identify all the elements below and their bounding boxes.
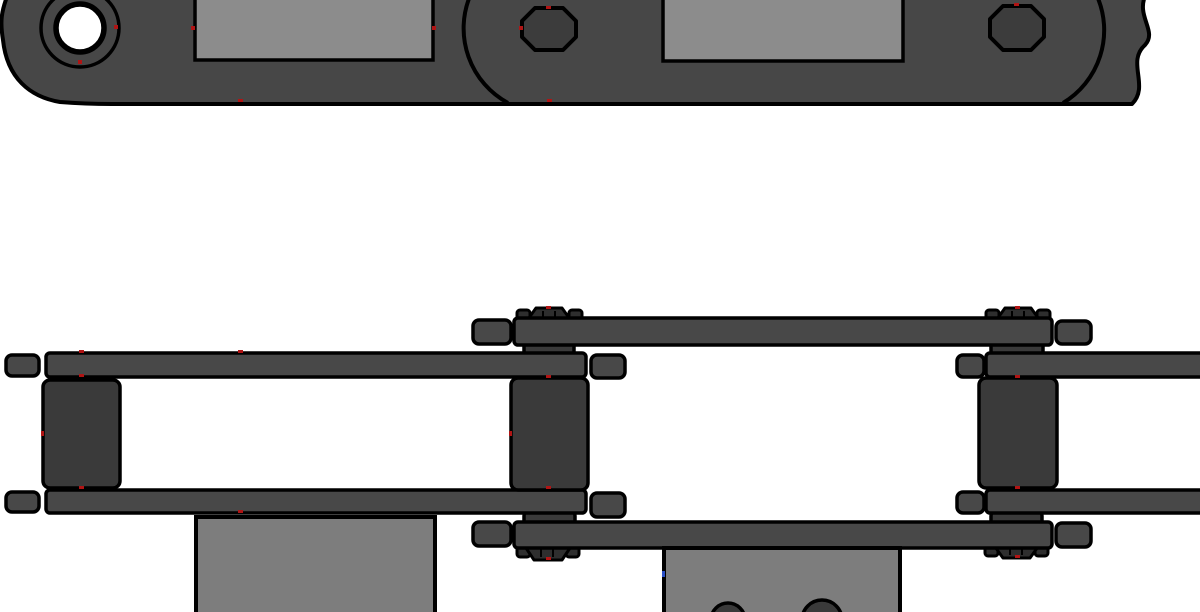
attachment-tab-left	[195, 0, 433, 60]
plan-view	[6, 306, 1200, 612]
attachment-tab-right	[663, 0, 903, 61]
outer-link-top-plate	[514, 318, 1052, 345]
plate-end-cap	[957, 355, 984, 377]
plate-end-cap	[6, 492, 39, 512]
plate-end-cap	[591, 355, 625, 378]
inner-link-bottom-plate	[46, 490, 586, 513]
inner-link-top-plate	[46, 353, 586, 377]
roller-right	[979, 378, 1057, 488]
pin-head-middle	[522, 8, 576, 50]
inner-link-top-plate	[986, 353, 1200, 377]
inner-link-bottom-plate	[986, 490, 1200, 513]
plate-end-cap	[473, 320, 511, 344]
plate-end-cap	[1056, 321, 1091, 344]
plate-end-cap	[1056, 523, 1091, 547]
pin-hole	[56, 4, 104, 52]
plate-end-cap	[957, 492, 984, 513]
bent-attachment-left	[196, 517, 435, 612]
plate-end-cap	[6, 355, 39, 376]
roller-middle	[511, 378, 588, 490]
roller-left	[43, 380, 120, 488]
pin-head-right	[990, 6, 1044, 50]
side-view	[1, 0, 1149, 104]
cad-drawing	[0, 0, 1200, 612]
link-plate-body	[1, 0, 1149, 104]
bent-attachment-right	[664, 548, 900, 612]
plate-end-cap	[473, 522, 511, 546]
plate-end-cap	[591, 493, 625, 517]
outer-link-bottom-plate	[514, 522, 1052, 548]
